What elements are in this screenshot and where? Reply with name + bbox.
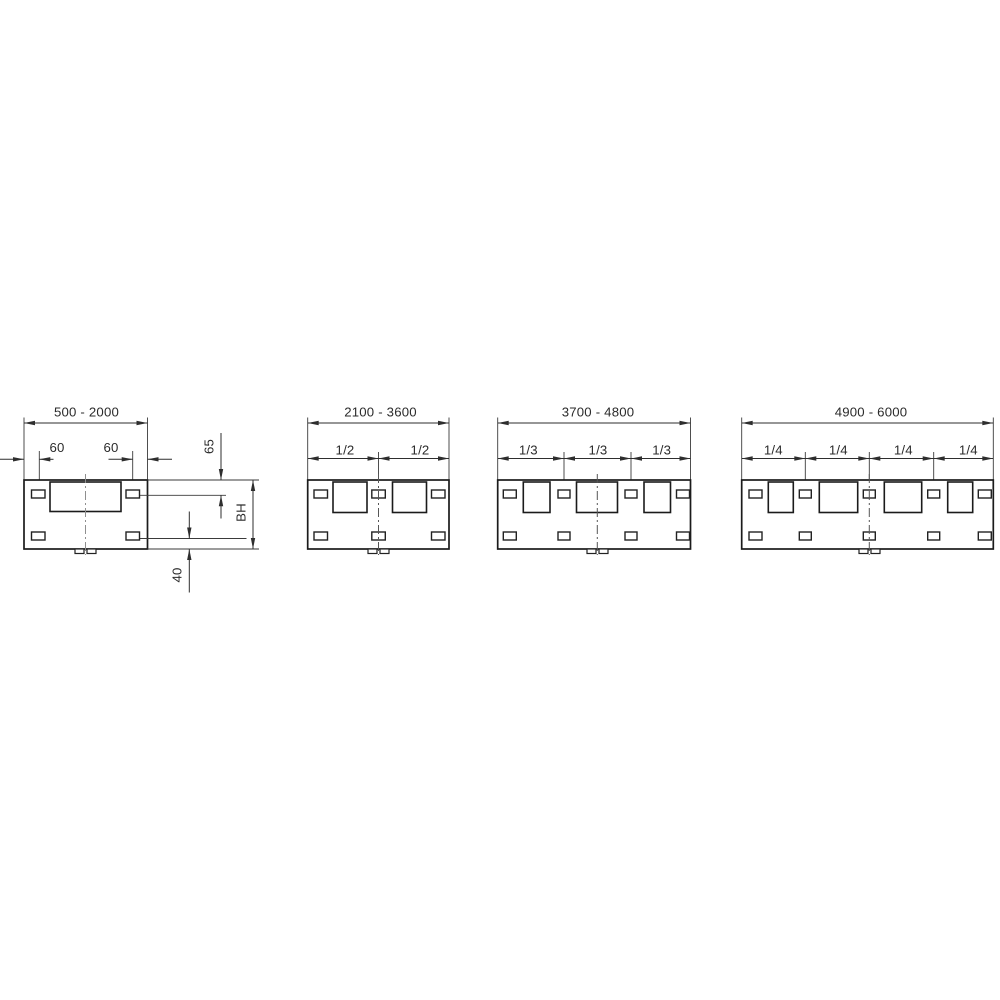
- mounting-slot: [32, 490, 46, 498]
- mounting-slot: [432, 532, 446, 540]
- dimension-label-range: 3700 - 4800: [562, 405, 635, 420]
- dimension-label-fraction: 1/4: [894, 443, 913, 458]
- din-tab: [599, 549, 608, 554]
- square-cutout: [884, 482, 921, 513]
- dimension-label-65: 65: [202, 439, 217, 454]
- mounting-slot: [978, 490, 991, 498]
- mounting-slot: [625, 532, 637, 540]
- din-tab: [87, 549, 96, 554]
- mounting-slot: [625, 490, 637, 498]
- mounting-slot: [503, 532, 516, 540]
- mounting-slot: [978, 532, 991, 540]
- din-tab: [859, 549, 868, 554]
- dimension-label-40: 40: [170, 567, 185, 582]
- mounting-slot: [749, 532, 762, 540]
- panel-4900-6000: 4900 - 6000 1/4 1/4 1/4 1/4: [742, 405, 994, 556]
- dimension-label-60-right: 60: [103, 440, 118, 455]
- mounting-slot: [32, 532, 46, 540]
- panel-500-2000: 500 - 2000 60 60 65 BH 4: [0, 405, 259, 593]
- square-cutout: [948, 482, 973, 513]
- mounting-slot: [677, 490, 690, 498]
- dimension-label-fraction: 1/3: [519, 443, 538, 458]
- dimension-label-range: 2100 - 3600: [344, 405, 417, 420]
- dimension-label-fraction: 1/4: [764, 443, 783, 458]
- mounting-slot: [677, 532, 690, 540]
- dimension-label-fraction: 1/3: [652, 443, 671, 458]
- din-tab: [368, 549, 377, 554]
- square-cutout: [768, 482, 793, 513]
- square-cutout: [644, 482, 671, 513]
- square-cutout: [393, 482, 427, 513]
- dimension-label-range: 4900 - 6000: [835, 405, 908, 420]
- mounting-slot: [126, 490, 140, 498]
- dimension-label-60-left: 60: [49, 440, 64, 455]
- dimension-label-fraction: 1/2: [411, 443, 430, 458]
- dimension-label-fraction: 1/4: [829, 443, 848, 458]
- mounting-slot: [314, 490, 328, 498]
- mounting-slot: [928, 490, 940, 498]
- square-cutout: [333, 482, 367, 513]
- mounting-slot: [749, 490, 762, 498]
- drawing-canvas: 500 - 2000 60 60 65 BH 4: [0, 0, 1000, 1000]
- mounting-slot: [799, 490, 811, 498]
- mounting-plate-diagram: 500 - 2000 60 60 65 BH 4: [0, 0, 1000, 1000]
- mounting-slot: [314, 532, 328, 540]
- mounting-slot: [558, 532, 570, 540]
- mounting-slot: [928, 532, 940, 540]
- din-tab: [380, 549, 389, 554]
- dimension-label-fraction: 1/4: [959, 443, 978, 458]
- mounting-slot: [558, 490, 570, 498]
- square-cutout: [523, 482, 550, 513]
- mounting-slot: [799, 532, 811, 540]
- dimension-label-fraction: 1/2: [336, 443, 355, 458]
- square-cutout: [819, 482, 857, 513]
- dimension-label-range: 500 - 2000: [54, 405, 119, 420]
- dimension-label-fraction: 1/3: [589, 443, 608, 458]
- din-tab: [871, 549, 880, 554]
- mounting-slot: [126, 532, 140, 540]
- dimension-label-bh: BH: [234, 503, 249, 522]
- panel-2100-3600: 2100 - 3600 1/2 1/2: [308, 405, 449, 556]
- panel-3700-4800: 3700 - 4800 1/3 1/3 1/3: [498, 405, 691, 556]
- din-tab: [75, 549, 84, 554]
- mounting-slot: [503, 490, 516, 498]
- din-tab: [587, 549, 596, 554]
- mounting-slot: [432, 490, 446, 498]
